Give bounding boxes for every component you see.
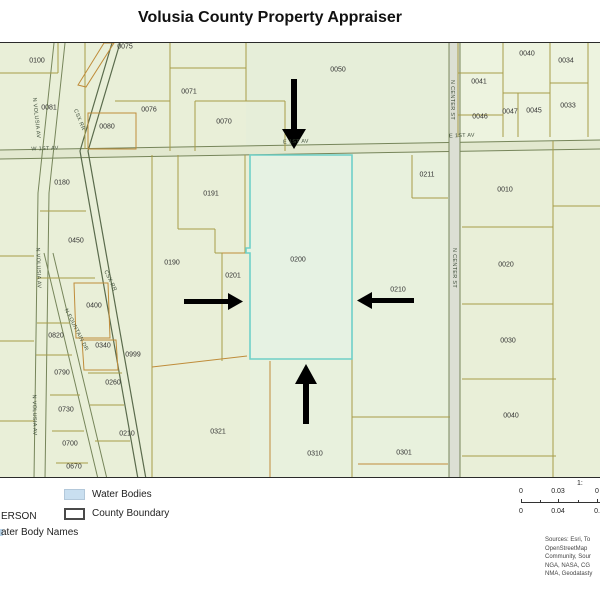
scale-tick-bottom-1: 0.04 — [551, 508, 565, 515]
sources-line: NGA, NASA, CG — [545, 562, 600, 571]
sources-line: NMA, Geodatasty — [545, 570, 600, 579]
scale-tick-top-1: 0.03 — [551, 488, 565, 495]
scale-tick-bottom-0: 0 — [519, 508, 523, 515]
scale-tick-bottom-2: 0. — [594, 508, 600, 515]
legend-cutoff-text-2: ater Body Names — [1, 527, 78, 538]
scale-ratio: 1: — [577, 480, 583, 487]
scale-tick-top-2: 0 — [595, 488, 599, 495]
county-boundary-label: County Boundary — [92, 508, 169, 519]
scale-tick-top-0: 0 — [519, 488, 523, 495]
map-canvas[interactable] — [0, 42, 600, 478]
highlighted-parcel-0200[interactable] — [246, 155, 352, 359]
scale-bar: 1: 0 0.03 0 0 0.04 0. — [515, 480, 600, 522]
screenshot-stage: Volusia County Property Appraiser — [0, 0, 600, 600]
legend-cutoff-text-1: ERSON — [1, 511, 37, 522]
scale-line — [521, 502, 600, 503]
sources-line: Community, Sour — [545, 553, 600, 562]
page-title: Volusia County Property Appraiser — [0, 9, 540, 27]
map-graphics — [0, 43, 600, 478]
sources-line: Sources: Esri, To — [545, 536, 600, 545]
water-bodies-label: Water Bodies — [92, 489, 152, 500]
water-bodies-swatch — [64, 489, 85, 500]
sources-attribution: Sources: Esri, ToOpenStreetMapCommunity,… — [545, 536, 600, 580]
sources-line: OpenStreetMap — [545, 545, 600, 554]
county-boundary-swatch — [64, 508, 85, 520]
